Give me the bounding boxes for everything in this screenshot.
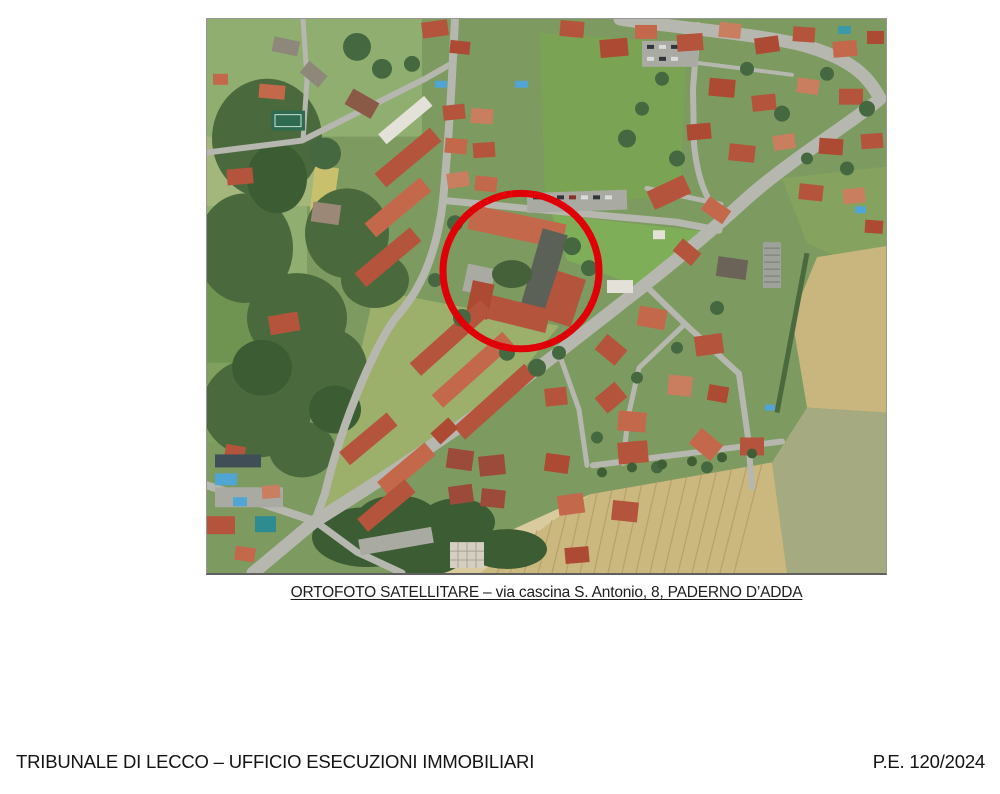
document-page: ORTOFOTO SATELLITARE – via cascina S. An… [0,0,1000,794]
footer-court-office: TRIBUNALE DI LECCO – UFFICIO ESECUZIONI … [16,751,534,773]
page-footer: TRIBUNALE DI LECCO – UFFICIO ESECUZIONI … [16,751,985,773]
satellite-photo [207,19,886,573]
image-caption: ORTOFOTO SATELLITARE – via cascina S. An… [206,584,887,602]
footer-case-number: P.E. 120/2024 [873,751,985,773]
satellite-orthophoto [206,18,887,575]
